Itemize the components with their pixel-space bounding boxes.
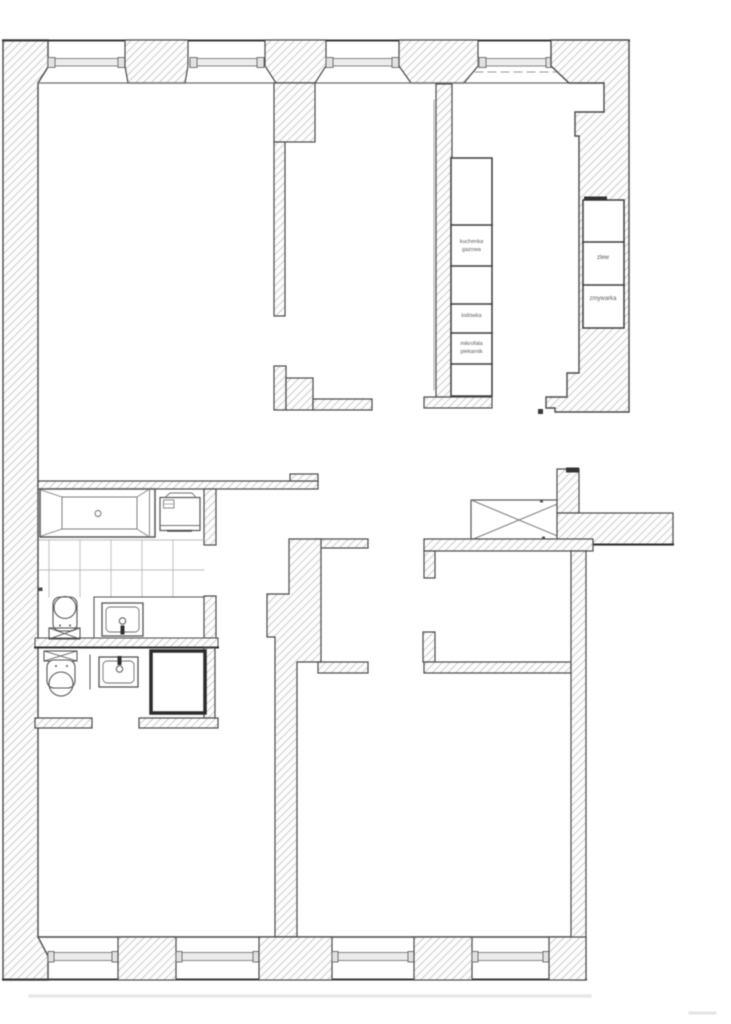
svg-text:piekarnik: piekarnik bbox=[460, 349, 482, 355]
svg-text:kuchenka: kuchenka bbox=[460, 239, 484, 245]
svg-text:zlew: zlew bbox=[597, 255, 610, 261]
svg-text:mikrofala: mikrofala bbox=[460, 341, 483, 347]
svg-text:gazowa: gazowa bbox=[462, 247, 482, 253]
svg-text:lodówka: lodówka bbox=[461, 313, 482, 319]
svg-text:zmywarka: zmywarka bbox=[589, 296, 617, 302]
